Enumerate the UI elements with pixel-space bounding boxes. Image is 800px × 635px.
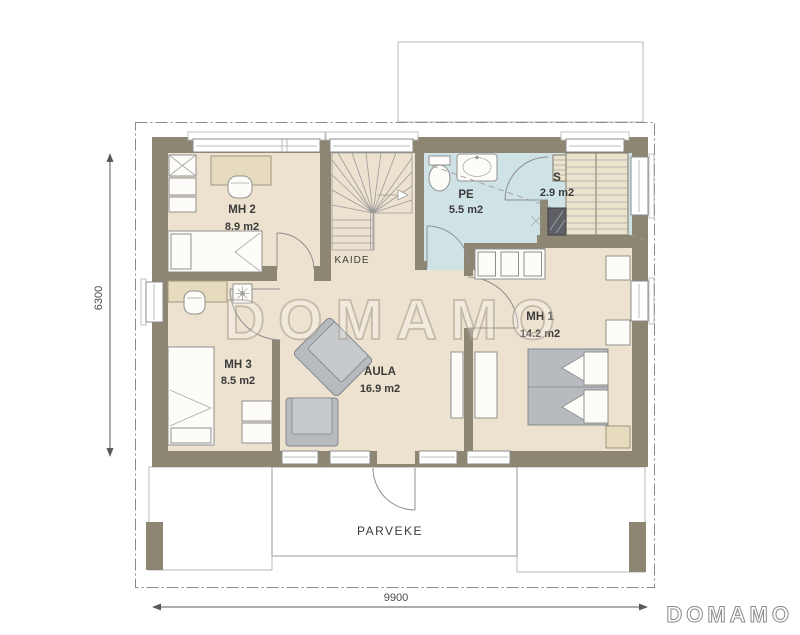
dimension-arrow: [107, 448, 114, 457]
window-sill: [649, 278, 654, 324]
balcony-pillar-right: [629, 522, 646, 572]
pillow-icon: [171, 428, 211, 443]
window-mh1-east: [631, 281, 648, 321]
window-sauna-east: [631, 157, 648, 215]
balcony-pillar-left: [146, 522, 163, 570]
wall-sauna-west: [540, 200, 548, 235]
balcony-door-opening: [377, 451, 415, 464]
pillow-icon: [584, 390, 608, 423]
window-aula-south: [282, 451, 318, 464]
wall-stairwell: [320, 153, 331, 281]
wall-sauna-south: [537, 235, 632, 248]
window-sauna-top: [566, 139, 624, 152]
window-aula-south: [330, 451, 370, 464]
toilet-icon: [429, 165, 450, 191]
pillow-icon: [584, 352, 608, 385]
window-mh3-west: [146, 282, 163, 322]
room-label-mh3: MH 3: [224, 359, 251, 371]
room-label-aula: AULA: [364, 366, 396, 378]
window-aula-south: [419, 451, 457, 464]
wardrobe-door: [524, 252, 542, 276]
nightstand-icon: [606, 256, 630, 280]
wall-bathroom-west: [415, 153, 424, 270]
balcony-rail-outline: [272, 467, 517, 556]
watermark-text: DOMAMO: [224, 288, 568, 352]
dimension-width-label: 9900: [384, 592, 408, 604]
shelf-icon: [475, 352, 497, 418]
balcony-label: PARVEKE: [357, 524, 423, 538]
floor-plan-page: PARVEKE: [0, 0, 800, 635]
wardrobe-door: [501, 252, 519, 276]
door-arc-balcony: [373, 468, 415, 510]
wall-bathroom-south-left: [415, 261, 427, 270]
chair-icon: [184, 291, 205, 314]
room-area-mh3: 8.5 m2: [221, 375, 255, 387]
window-sill: [141, 279, 146, 325]
shelf-icon: [169, 197, 196, 212]
nightstand-icon: [606, 426, 630, 448]
toilet-tank-icon: [429, 156, 450, 165]
room-area-aula: 16.9 m2: [360, 383, 400, 395]
shelf-icon: [169, 178, 196, 195]
room-label-pe: PE: [458, 189, 474, 201]
wardrobe-door: [478, 252, 496, 276]
porch-left: [149, 467, 272, 570]
room-area-s: 2.9 m2: [540, 187, 574, 199]
room-label-mh2: MH 2: [228, 204, 255, 216]
pillow-icon: [171, 234, 191, 269]
porch-right: [517, 467, 645, 572]
bathroom-floor-lower: [424, 243, 469, 270]
sink-tap-icon: [475, 156, 478, 159]
brand-logo: DOMAMO: [666, 602, 793, 627]
roof-outline-upper: [398, 42, 643, 122]
shelf-icon: [451, 352, 463, 418]
chair-icon: [228, 176, 252, 198]
window-sill: [649, 154, 654, 218]
stairs-railing-label: KAIDE: [334, 255, 369, 266]
dimension-arrow: [639, 604, 648, 611]
balcony-zone: PARVEKE: [146, 467, 646, 572]
dresser-icon: [242, 423, 272, 443]
dimension-arrow: [107, 153, 114, 162]
window-stairs: [330, 139, 413, 152]
armchair-seat: [292, 398, 332, 434]
wall-mh3-east: [272, 340, 280, 451]
room-area-pe: 5.5 m2: [449, 204, 483, 216]
dimension-arrow: [152, 604, 161, 611]
nightstand-icon: [606, 320, 630, 345]
dimension-depth-label: 6300: [93, 286, 105, 310]
dresser-icon: [242, 401, 272, 421]
floor-plan-drawing: PARVEKE: [0, 0, 800, 635]
room-label-s: S: [553, 172, 561, 184]
room-area-mh2: 8.9 m2: [225, 221, 259, 233]
window-aula-south: [467, 451, 510, 464]
window-mh2: [193, 139, 320, 152]
